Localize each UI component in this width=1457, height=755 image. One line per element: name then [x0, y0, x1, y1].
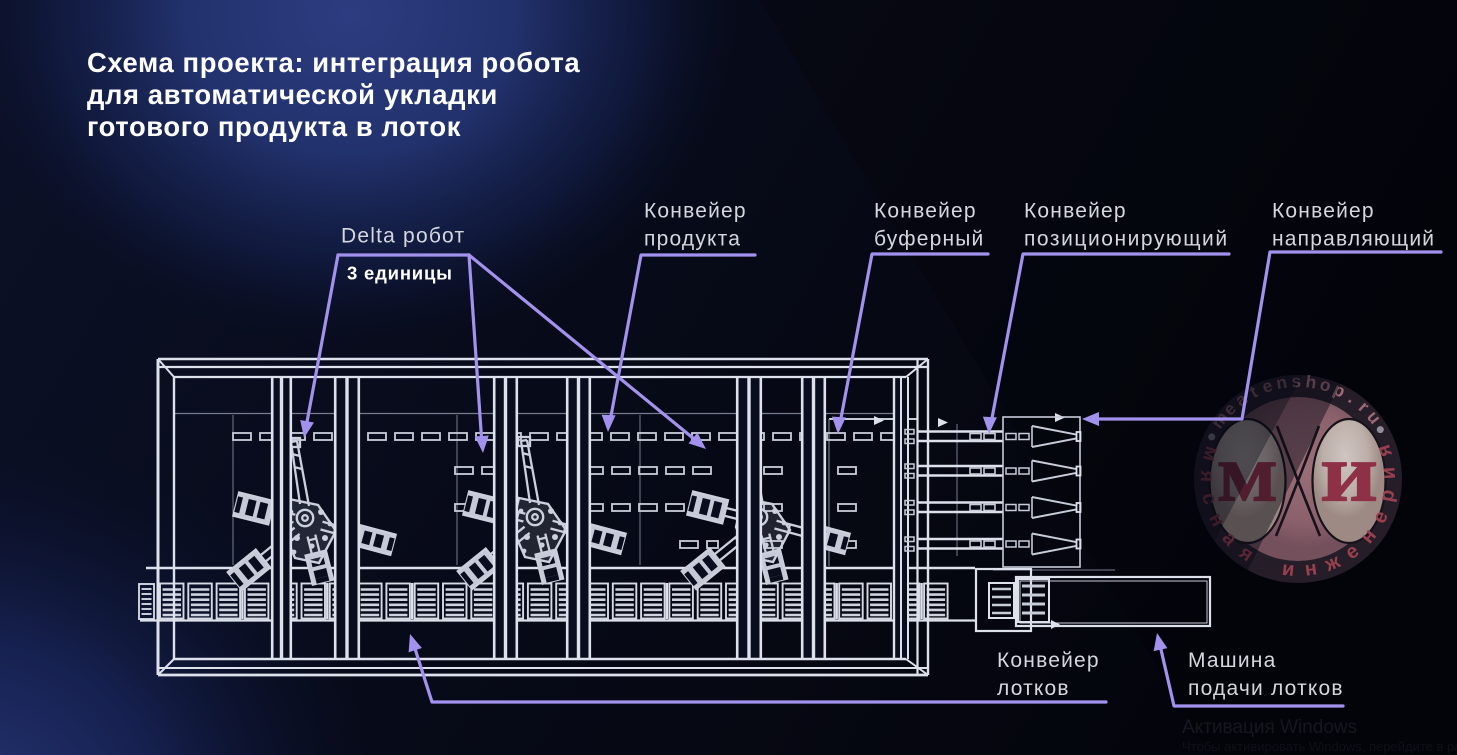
svg-text:Схема проекта: интеграция робо: Схема проекта: интеграция робота	[87, 47, 580, 78]
svg-text:направляющий: направляющий	[1272, 228, 1435, 251]
svg-text:для автоматической укладки: для автоматической укладки	[87, 79, 498, 110]
svg-text:лотков: лотков	[997, 677, 1070, 700]
svg-text:Машина: Машина	[1188, 649, 1276, 672]
svg-text:Активация Windows: Активация Windows	[1182, 717, 1357, 738]
svg-text:и: и	[1377, 466, 1400, 480]
svg-text:буферный: буферный	[874, 228, 985, 251]
svg-text:Конвейер: Конвейер	[1024, 200, 1127, 223]
svg-text:и: и	[1281, 558, 1296, 581]
svg-text:Конвейер: Конвейер	[1272, 200, 1375, 223]
svg-text:Конвейер: Конвейер	[644, 200, 747, 223]
svg-text:подачи лотков: подачи лотков	[1188, 677, 1344, 700]
svg-text:продукта: продукта	[644, 228, 741, 251]
svg-text:позиционирующий: позиционирующий	[1024, 228, 1229, 251]
svg-text:И: И	[1322, 451, 1376, 513]
svg-text:3 единицы: 3 единицы	[347, 263, 453, 284]
svg-text:Конвейер: Конвейер	[997, 649, 1100, 672]
svg-text:Конвейер: Конвейер	[874, 200, 977, 223]
svg-text:готового продукта в лоток: готового продукта в лоток	[87, 111, 461, 142]
svg-text:Чтобы активировать Windows, пе: Чтобы активировать Windows, перейдите в …	[1182, 739, 1457, 754]
svg-text:Delta робот: Delta робот	[341, 225, 465, 248]
